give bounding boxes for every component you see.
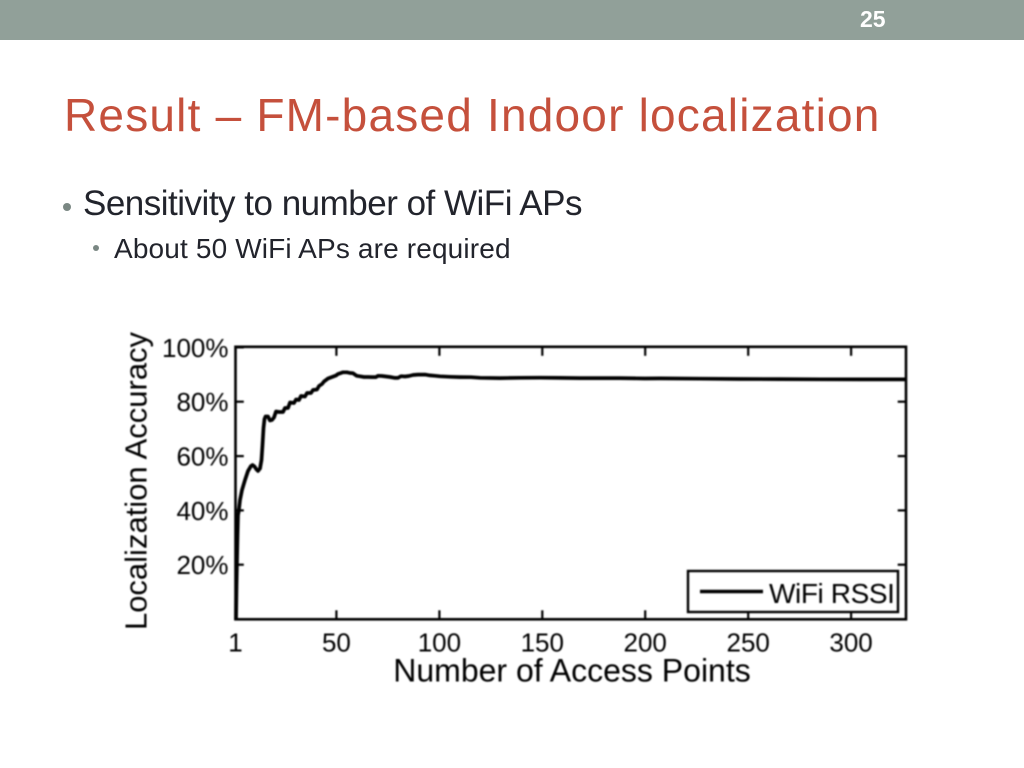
svg-text:60%: 60% [176,442,228,472]
svg-text:50: 50 [322,628,351,658]
svg-text:WiFi RSSI: WiFi RSSI [769,578,895,609]
svg-text:80%: 80% [176,387,228,417]
svg-text:100%: 100% [162,333,229,363]
svg-text:Localization Accuracy: Localization Accuracy [119,331,154,630]
svg-text:20%: 20% [176,550,228,580]
svg-text:40%: 40% [176,496,228,526]
svg-text:Number of Access Points: Number of Access Points [393,653,750,689]
svg-text:1: 1 [228,628,242,658]
svg-text:300: 300 [829,628,872,658]
